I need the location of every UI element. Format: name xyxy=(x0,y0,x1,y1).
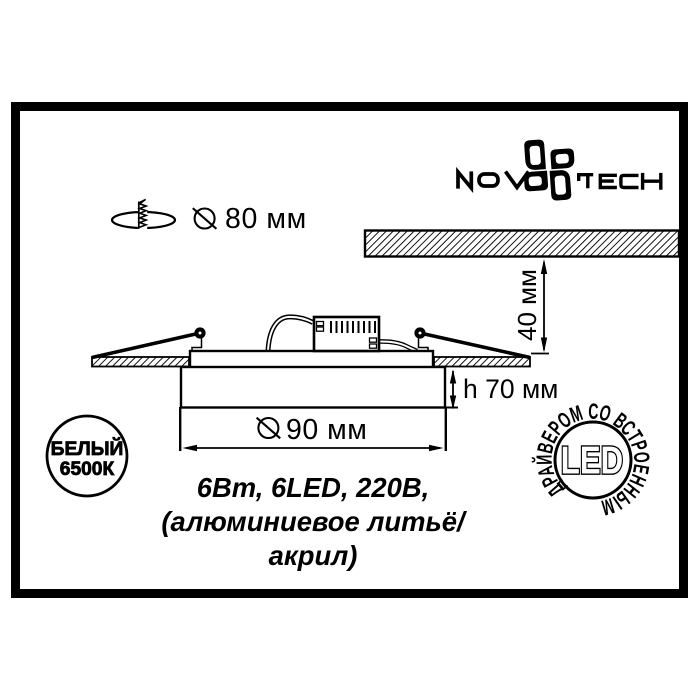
svg-text:90 мм: 90 мм xyxy=(286,414,367,446)
svg-text:акрил): акрил) xyxy=(269,540,358,571)
svg-text:(алюминиевое литьё/: (алюминиевое литьё/ xyxy=(161,506,468,537)
svg-text:6Вт, 6LED, 220В,: 6Вт, 6LED, 220В, xyxy=(197,472,430,503)
svg-text:h 70 мм: h 70 мм xyxy=(463,374,558,404)
svg-text:LED: LED xyxy=(561,439,623,482)
svg-text:80 мм: 80 мм xyxy=(225,203,307,235)
svg-text:40 мм: 40 мм xyxy=(512,269,542,341)
svg-text:6500К: 6500К xyxy=(60,459,115,480)
svg-text:БЕЛЫЙ: БЕЛЫЙ xyxy=(51,438,124,460)
